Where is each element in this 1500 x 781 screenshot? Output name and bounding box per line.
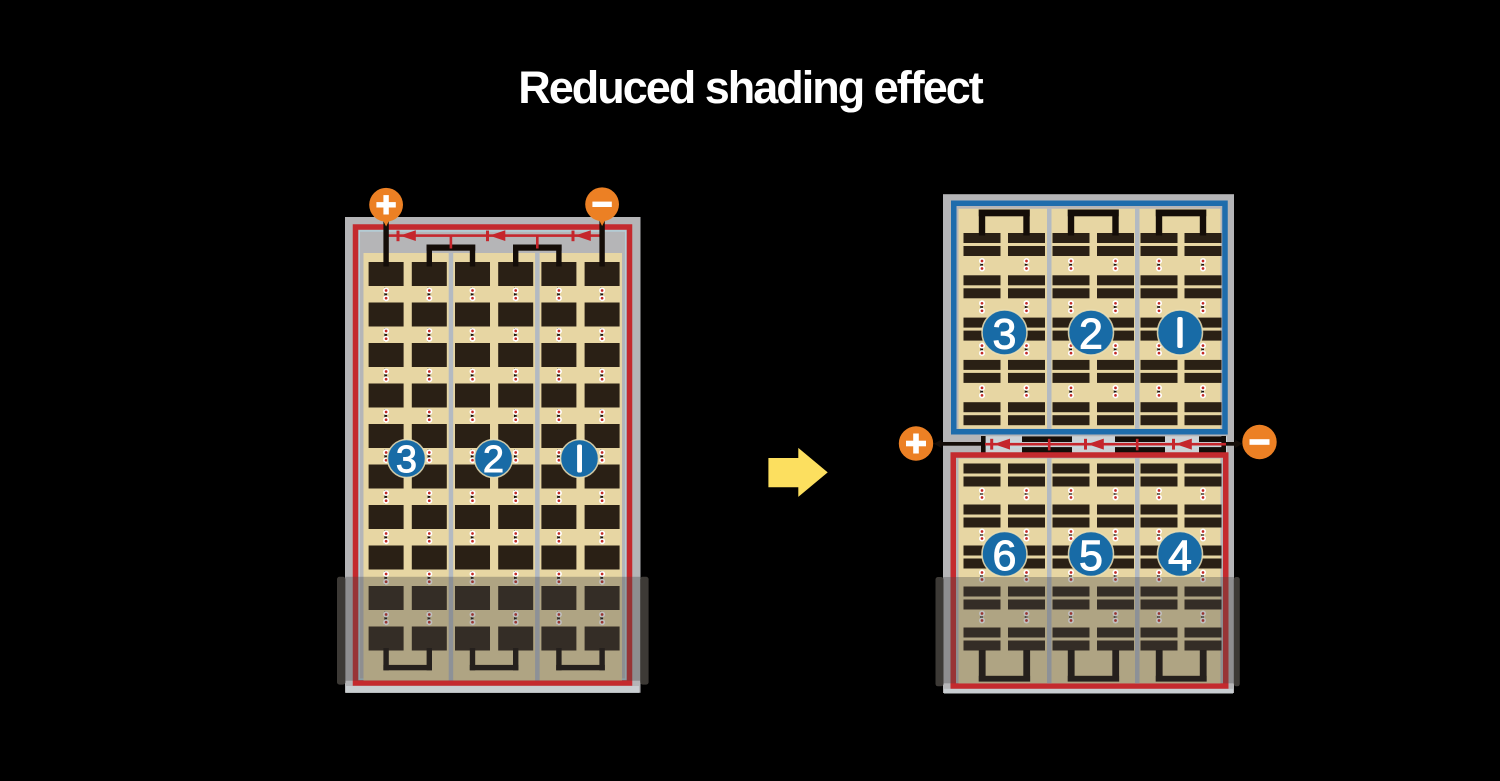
svg-text:6: 6 [993, 532, 1017, 580]
svg-text:2: 2 [1079, 311, 1103, 359]
svg-text:Reduced shading effect: Reduced shading effect [518, 62, 984, 113]
svg-text:3: 3 [993, 311, 1017, 359]
svg-text:5: 5 [1079, 532, 1103, 580]
svg-text:2: 2 [483, 439, 504, 481]
svg-text:3: 3 [396, 439, 417, 481]
svg-text:4: 4 [1168, 532, 1192, 580]
